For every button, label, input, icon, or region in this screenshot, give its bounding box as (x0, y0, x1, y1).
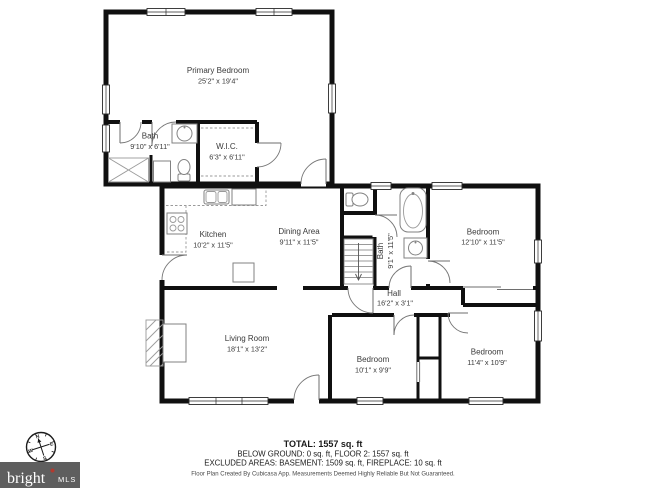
bathtub (400, 188, 426, 232)
floor-plan-canvas: Primary Bedroom 25'2" x 19'4" Bath 9'10"… (0, 0, 650, 488)
door (120, 120, 142, 144)
door (448, 313, 468, 333)
room-label-bedroom-bottom-right: Bedroom 11'4" x 10'9" (467, 348, 507, 368)
sink (404, 238, 427, 258)
bright-mls-logo: bright MLS (0, 462, 80, 488)
door (160, 255, 188, 280)
svg-text:Hall: Hall (387, 289, 401, 298)
svg-text:Dining Area: Dining Area (278, 227, 320, 236)
window (147, 9, 185, 16)
fireplace (146, 320, 186, 366)
room-label-hall-bath: Bath 9'1" x 11'5" (376, 233, 395, 269)
room-label-wic: W.I.C. 6'3" x 6'11" (209, 142, 245, 162)
room-label-dining-area: Dining Area 9'11" x 11'5" (278, 227, 320, 247)
kitchen-island (233, 263, 254, 282)
svg-text:Living Room: Living Room (225, 334, 270, 343)
door (254, 143, 281, 167)
room-label-primary-bedroom: Primary Bedroom 25'2" x 19'4" (187, 66, 250, 86)
toilet (346, 193, 368, 206)
svg-text:9'1" x 11'5": 9'1" x 11'5" (386, 233, 395, 269)
appliance (232, 189, 256, 205)
svg-text:Bath: Bath (376, 243, 385, 259)
room-label-living-room: Living Room 18'1" x 13'2" (225, 334, 270, 354)
svg-text:11'4" x 10'9": 11'4" x 10'9" (467, 358, 507, 367)
room-label-bedroom-right: Bedroom 12'10" x 11'5" (461, 228, 505, 247)
room-label-bedroom-middle: Bedroom 10'1" x 9'9" (355, 355, 391, 375)
svg-text:25'2" x 19'4": 25'2" x 19'4" (198, 77, 238, 86)
toilet (178, 160, 190, 182)
room-label-kitchen: Kitchen 10'2" x 11'5" (193, 230, 233, 250)
svg-text:9'11" x 11'5": 9'11" x 11'5" (280, 238, 319, 247)
svg-text:6'3" x 6'11": 6'3" x 6'11" (209, 153, 245, 162)
door (426, 261, 451, 283)
window (103, 125, 110, 152)
kitchen-sink (204, 190, 229, 204)
window (535, 240, 542, 263)
logo-bright-text: bright (7, 470, 46, 487)
window (432, 183, 462, 190)
room-label-primary-bath: Bath 9'10" x 6'11" (130, 132, 170, 152)
excluded-area-text: EXCLUDED AREAS: BASEMENT: 1509 sq. ft, F… (204, 459, 442, 468)
floor-plan-page: Primary Bedroom 25'2" x 19'4" Bath 9'10"… (0, 0, 650, 488)
disclaimer-text: Floor Plan Created By Cubicasa App. Meas… (191, 472, 455, 478)
stove (167, 213, 187, 234)
logo-accent-dot (51, 469, 55, 473)
door (394, 313, 414, 336)
svg-text:16'2" x 3'1": 16'2" x 3'1" (377, 299, 413, 308)
door (301, 159, 326, 187)
staircase (344, 239, 373, 284)
door (348, 286, 373, 314)
svg-text:Bedroom: Bedroom (467, 228, 500, 237)
svg-text:18'1" x 13'2": 18'1" x 13'2" (227, 345, 267, 354)
shower (109, 158, 149, 182)
cabinet (154, 161, 171, 182)
floors-area-text: BELOW GROUND: 0 sq. ft, FLOOR 2: 1557 sq… (237, 450, 409, 459)
room-label-hall: Hall 16'2" x 3'1" (377, 289, 413, 308)
svg-text:Bedroom: Bedroom (357, 355, 390, 364)
window (535, 311, 542, 341)
window (329, 84, 336, 113)
window (189, 398, 268, 405)
logo-mls-text: MLS (58, 475, 76, 484)
window (357, 398, 383, 405)
window (256, 9, 292, 16)
sink (172, 124, 197, 143)
svg-text:10'1" x 9'9": 10'1" x 9'9" (355, 366, 391, 375)
area-summary: TOTAL: 1557 sq. ft BELOW GROUND: 0 sq. f… (191, 439, 455, 478)
branding: N E S W bright MLS (0, 430, 80, 488)
sliding-closet-doors (463, 287, 533, 290)
svg-text:W.I.C.: W.I.C. (216, 142, 238, 151)
door (294, 375, 319, 404)
total-area-text: TOTAL: 1557 sq. ft (284, 439, 363, 449)
window (469, 398, 503, 405)
window (371, 183, 391, 190)
svg-text:Primary Bedroom: Primary Bedroom (187, 66, 250, 75)
svg-text:10'2" x 11'5": 10'2" x 11'5" (193, 241, 233, 250)
closet-door (417, 362, 420, 382)
compass-rose-icon: N E S W (24, 430, 58, 466)
window (103, 85, 110, 114)
svg-text:Kitchen: Kitchen (200, 230, 227, 239)
svg-text:Bath: Bath (142, 132, 158, 141)
svg-text:Bedroom: Bedroom (471, 348, 504, 357)
svg-text:9'10" x 6'11": 9'10" x 6'11" (130, 142, 170, 151)
svg-text:12'10" x 11'5": 12'10" x 11'5" (461, 238, 505, 247)
